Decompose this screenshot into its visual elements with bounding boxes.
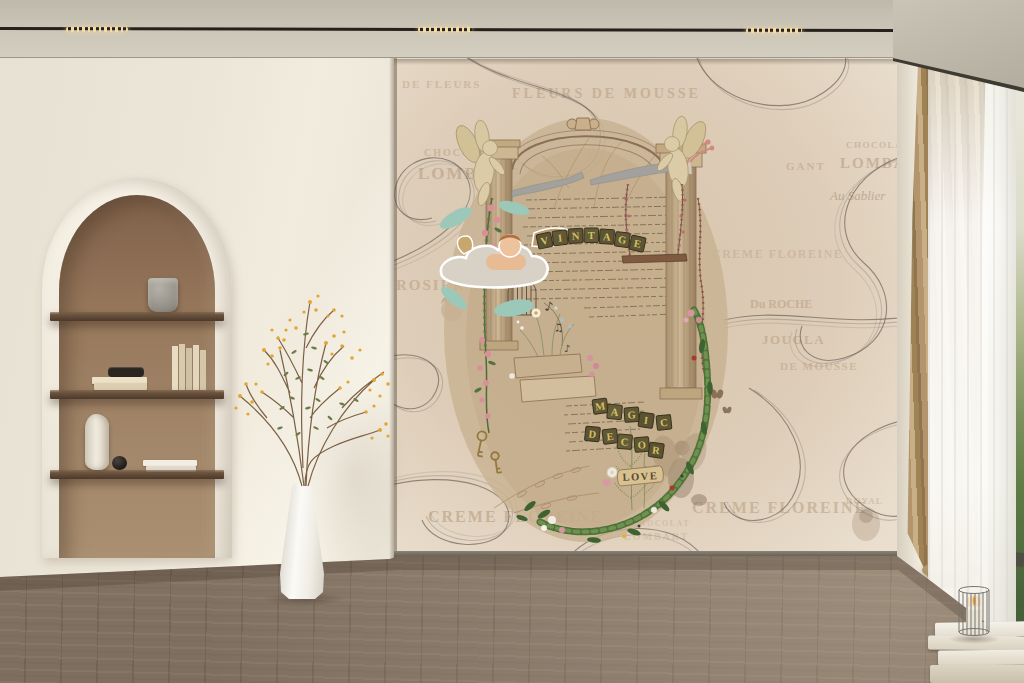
svg-text:♪: ♪ bbox=[564, 343, 570, 354]
svg-text:LOVE: LOVE bbox=[622, 470, 658, 483]
svg-text:G: G bbox=[627, 409, 636, 421]
led-strip-light bbox=[418, 27, 472, 32]
svg-text:Du ROCHE: Du ROCHE bbox=[750, 297, 812, 311]
svg-text:O: O bbox=[637, 439, 646, 451]
sheer-curtain-folds bbox=[928, 55, 1016, 663]
mural-top-shadow bbox=[394, 59, 897, 65]
led-strip-light bbox=[746, 28, 802, 33]
carved-vase bbox=[85, 414, 109, 470]
niche-shelf bbox=[50, 390, 224, 399]
svg-text:JOUGLA: JOUGLA bbox=[762, 332, 825, 347]
leaves bbox=[277, 332, 359, 437]
mural-wallpaper: DE FLEURS FLEURS DE MOUSSE CHOCOLAT LOMB… bbox=[394, 58, 897, 558]
svg-text:N: N bbox=[572, 230, 581, 241]
svg-text:CREME FLOREINE: CREME FLOREINE bbox=[712, 247, 843, 261]
svg-text:M: M bbox=[594, 400, 605, 412]
branches bbox=[240, 302, 384, 486]
svg-text:GANT: GANT bbox=[786, 160, 826, 172]
svg-text:CHOCOLAT: CHOCOLAT bbox=[846, 140, 897, 150]
stone-pot bbox=[148, 278, 178, 312]
arched-niche bbox=[42, 178, 232, 558]
stacked-book bbox=[94, 383, 147, 390]
stacked-book bbox=[938, 650, 1024, 666]
svg-text:Au Sablier: Au Sablier bbox=[829, 188, 886, 203]
arch-keystone bbox=[567, 118, 599, 130]
svg-text:T: T bbox=[588, 230, 595, 241]
niche-shelf bbox=[50, 312, 224, 321]
stacked-book bbox=[930, 665, 1024, 683]
led-strip-light bbox=[66, 27, 128, 32]
svg-text:DE FLEURS: DE FLEURS bbox=[402, 78, 481, 90]
black-sphere bbox=[112, 456, 127, 470]
interior-room-scene: DE FLEURS FLEURS DE MOUSSE CHOCOLAT LOMB… bbox=[0, 0, 1024, 683]
niche-shelf bbox=[50, 470, 224, 479]
svg-text:CREME FLOREINE: CREME FLOREINE bbox=[692, 499, 867, 516]
upright-books bbox=[172, 344, 206, 390]
svg-text:E: E bbox=[606, 431, 614, 443]
svg-text:ROYAL: ROYAL bbox=[846, 496, 883, 506]
yellow-flowering-branches bbox=[222, 288, 407, 493]
black-box bbox=[108, 367, 144, 377]
svg-text:A: A bbox=[603, 231, 612, 242]
wire-candle-holder bbox=[952, 582, 996, 640]
svg-text:C: C bbox=[660, 417, 669, 429]
svg-text:A: A bbox=[610, 406, 619, 418]
svg-text:G: G bbox=[618, 234, 627, 246]
svg-text:C: C bbox=[620, 436, 628, 448]
